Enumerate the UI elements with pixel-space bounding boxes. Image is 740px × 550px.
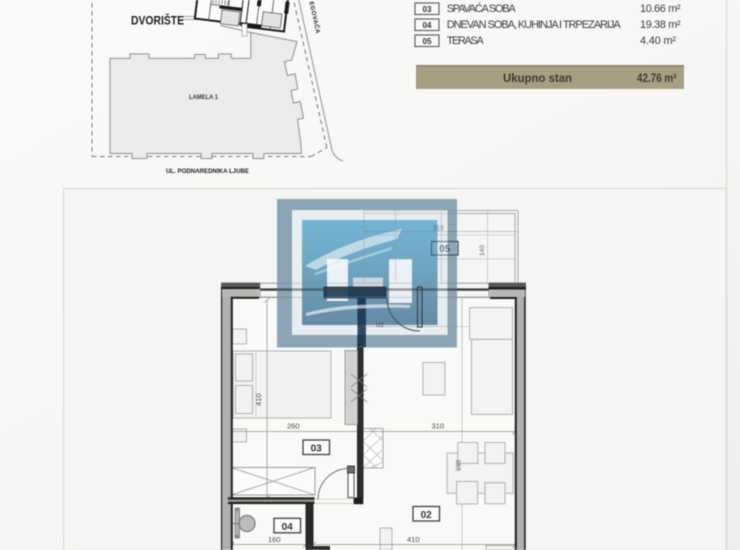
svg-text:DVORIŠTE: DVORIŠTE bbox=[131, 15, 184, 28]
svg-text:Ukupno stan: Ukupno stan bbox=[503, 71, 572, 85]
svg-text:690: 690 bbox=[456, 460, 463, 471]
svg-text:U2: U2 bbox=[376, 323, 384, 329]
svg-text:05: 05 bbox=[439, 244, 451, 255]
svg-text:410: 410 bbox=[407, 535, 420, 544]
svg-text:410: 410 bbox=[254, 393, 263, 406]
svg-text:19.38 m²: 19.38 m² bbox=[640, 19, 681, 31]
svg-text:260: 260 bbox=[287, 422, 300, 431]
svg-text:140: 140 bbox=[479, 245, 486, 256]
svg-text:EGOVAČA: EGOVAČA bbox=[308, 1, 322, 35]
svg-text:04: 04 bbox=[282, 522, 294, 533]
svg-text:02: 02 bbox=[421, 510, 433, 521]
svg-text:05: 05 bbox=[423, 37, 432, 46]
svg-text:DNEVAN SOBA, KUHINJA I TRPEZAR: DNEVAN SOBA, KUHINJA I TRPEZARIJA bbox=[447, 19, 622, 31]
svg-text:04: 04 bbox=[423, 21, 432, 30]
svg-text:42.76 m²: 42.76 m² bbox=[637, 71, 677, 85]
svg-text:4.40 m²: 4.40 m² bbox=[640, 35, 676, 47]
svg-text:315: 315 bbox=[433, 225, 444, 232]
svg-text:03: 03 bbox=[423, 5, 432, 14]
svg-text:310: 310 bbox=[432, 422, 445, 431]
svg-text:03: 03 bbox=[311, 444, 323, 455]
svg-text:10.66 m²: 10.66 m² bbox=[640, 3, 681, 15]
svg-text:SPAVAĆA SOBA: SPAVAĆA SOBA bbox=[447, 2, 517, 15]
svg-text:160: 160 bbox=[268, 535, 281, 544]
svg-text:LAMELA 1: LAMELA 1 bbox=[189, 94, 218, 101]
svg-text:UL. PODNAREDNIKA LJUBE: UL. PODNAREDNIKA LJUBE bbox=[166, 168, 249, 175]
svg-text:TERASA: TERASA bbox=[447, 35, 485, 47]
